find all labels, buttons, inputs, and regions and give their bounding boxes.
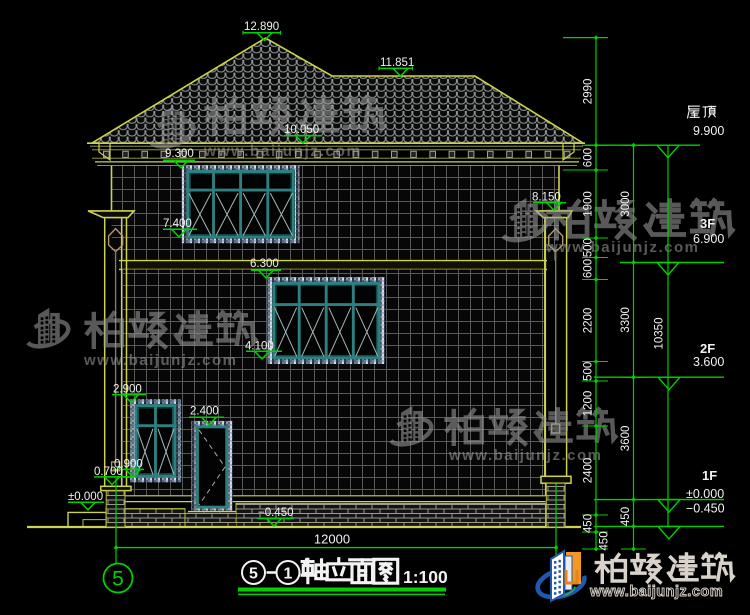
svg-text:7.400: 7.400 <box>163 218 192 230</box>
svg-text:1F: 1F <box>702 468 717 483</box>
svg-text:−0.450: −0.450 <box>258 507 294 519</box>
svg-text:500: 500 <box>583 238 595 257</box>
svg-text:3.600: 3.600 <box>693 355 724 369</box>
svg-text:5: 5 <box>112 568 124 591</box>
svg-text:500: 500 <box>583 362 595 381</box>
svg-text:±0.000: ±0.000 <box>68 491 103 503</box>
svg-text:10350: 10350 <box>654 318 666 350</box>
svg-text:3600: 3600 <box>620 426 632 452</box>
svg-text:9.900: 9.900 <box>693 124 724 138</box>
svg-text:12.890: 12.890 <box>244 21 279 33</box>
svg-text:450: 450 <box>599 531 611 550</box>
svg-text:600: 600 <box>583 259 595 278</box>
svg-text:−0.450: −0.450 <box>686 502 725 516</box>
svg-text:1: 1 <box>284 566 293 583</box>
svg-text:www.baijunjz.com: www.baijunjz.com <box>545 239 699 256</box>
svg-text:1:100: 1:100 <box>403 567 448 587</box>
svg-text:11.851: 11.851 <box>380 57 414 69</box>
svg-text:450: 450 <box>620 507 632 526</box>
svg-text:12000: 12000 <box>314 532 350 547</box>
svg-text:9.300: 9.300 <box>165 148 194 160</box>
svg-text:6.300: 6.300 <box>250 258 279 270</box>
svg-text:600: 600 <box>583 148 595 167</box>
svg-text:10.050: 10.050 <box>284 124 319 136</box>
svg-text:3000: 3000 <box>620 191 632 217</box>
svg-text:5: 5 <box>249 566 258 583</box>
svg-text:3F: 3F <box>700 216 715 231</box>
svg-text:1200: 1200 <box>583 391 595 417</box>
svg-text:2.400: 2.400 <box>190 406 219 418</box>
svg-text:2990: 2990 <box>583 79 595 105</box>
svg-text:8.150: 8.150 <box>532 192 561 204</box>
svg-text:www.baijunjz.com: www.baijunjz.com <box>83 352 237 369</box>
svg-text:2F: 2F <box>700 341 715 356</box>
svg-text:www.baijunjz.com: www.baijunjz.com <box>448 447 602 464</box>
svg-text:3300: 3300 <box>620 307 632 333</box>
svg-text:2200: 2200 <box>583 308 595 334</box>
svg-text:2400: 2400 <box>583 458 595 484</box>
svg-text:1900: 1900 <box>583 191 595 217</box>
svg-text:6.900: 6.900 <box>693 232 724 246</box>
svg-text:2.900: 2.900 <box>113 384 142 396</box>
svg-text:www.baijunjz.com: www.baijunjz.com <box>589 584 723 600</box>
svg-text:450: 450 <box>583 514 595 533</box>
svg-text:www.baijunjz.com: www.baijunjz.com <box>203 143 362 160</box>
